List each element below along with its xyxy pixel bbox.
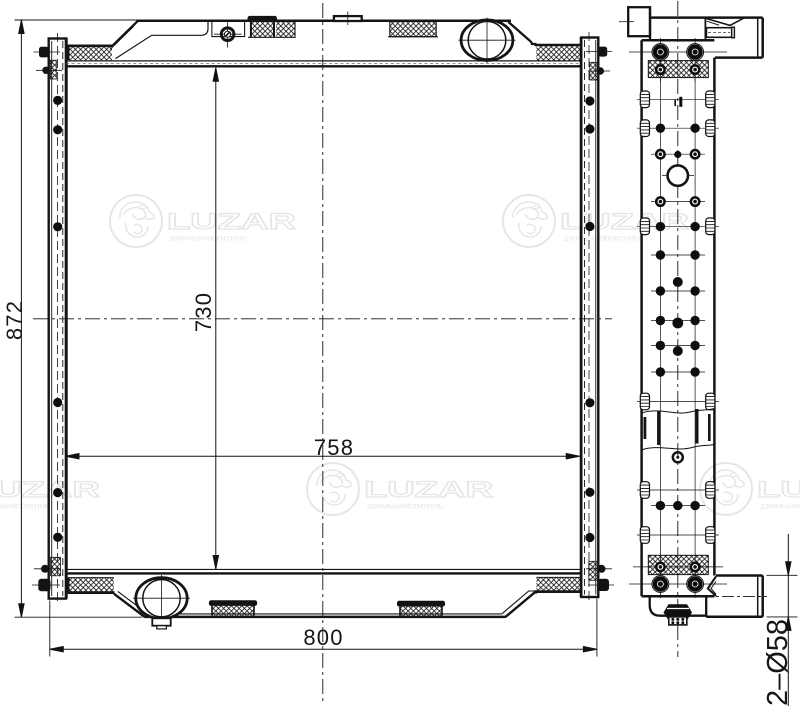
svg-text:758: 758	[314, 435, 354, 460]
svg-text:800: 800	[303, 625, 343, 650]
svg-text:2–Ø58: 2–Ø58	[762, 619, 794, 706]
svg-text:730: 730	[191, 292, 216, 332]
svg-text:872: 872	[2, 300, 27, 340]
